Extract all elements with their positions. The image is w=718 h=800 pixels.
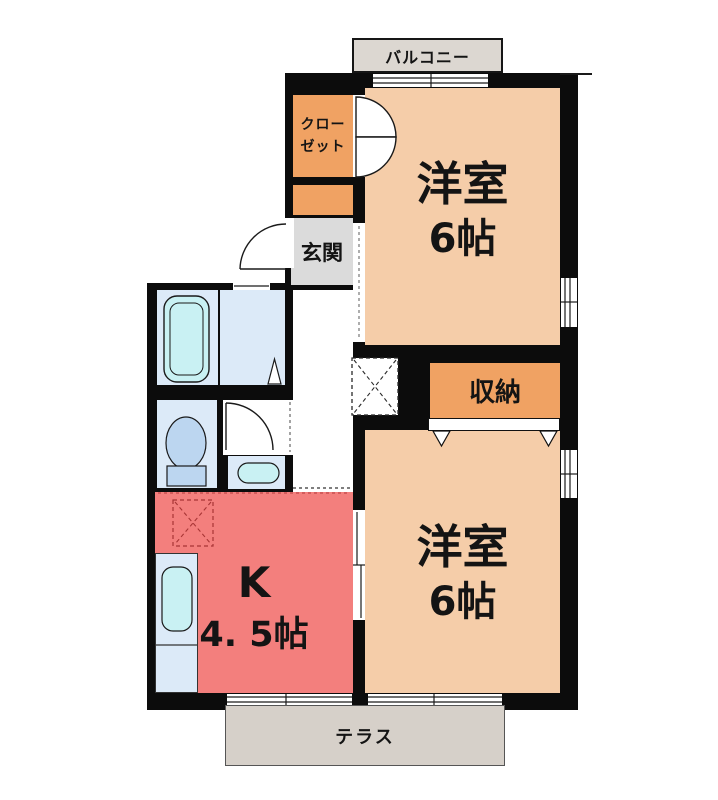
corridor-floor [293,290,353,492]
storage-folding-door [428,418,560,431]
closet-label-line1: クロー [301,114,346,136]
washroom-door-area [223,400,293,455]
balcony-label: バルコニー [354,40,501,71]
wall-storage-left [398,357,430,430]
right-window-bottom [561,450,577,498]
terrace-window-room [368,694,502,705]
washroom-floor [220,290,285,385]
balcony-window [373,74,488,87]
shoe-cabinet [293,185,353,215]
storage-label: 収納 [430,363,560,418]
western-room-top-name: 洋室 [417,161,509,207]
floor-plan: バルコニー テラス クロー ゼット 玄関 洋室 6帖 収納 洋室 6帖 K 4.… [0,0,718,800]
kitchen-name: K [238,562,271,604]
closet-label: クロー ゼット [293,95,353,177]
western-room-bottom-size: 6帖 [429,582,497,622]
pipe-space-icon [352,358,398,415]
kitchen-label: K 4. 5帖 [158,540,350,675]
closet-label-line2: ゼット [301,136,346,158]
toilet-room-floor [157,400,217,488]
western-room-top-label: 洋室 6帖 [365,125,560,295]
terrace-label: テラス [226,706,504,765]
balcony: バルコニー [352,38,503,73]
right-window-top [561,278,577,327]
terrace-window-kitchen [227,694,352,705]
entrance-door-icon [240,224,286,269]
bathroom-floor [157,290,218,385]
terrace: テラス [225,705,505,766]
closet-door-opening [353,95,365,177]
wall-right [560,73,578,707]
western-room-bottom-label: 洋室 6帖 [365,490,560,655]
kitchen-size: 4. 5帖 [199,618,308,653]
wall-room2-left-upper [353,430,365,510]
wall-room2-left-lower [353,620,365,695]
washroom-window [233,283,270,290]
western-room-top-size: 6帖 [429,219,497,259]
entrance-label: 玄関 [291,218,353,285]
western-room-bottom-name: 洋室 [417,524,509,570]
washbasin-area [228,456,285,489]
room-bottom-sliding-door [353,510,365,620]
wall-below-ps [352,415,398,430]
room-top-door-opening [353,223,365,342]
